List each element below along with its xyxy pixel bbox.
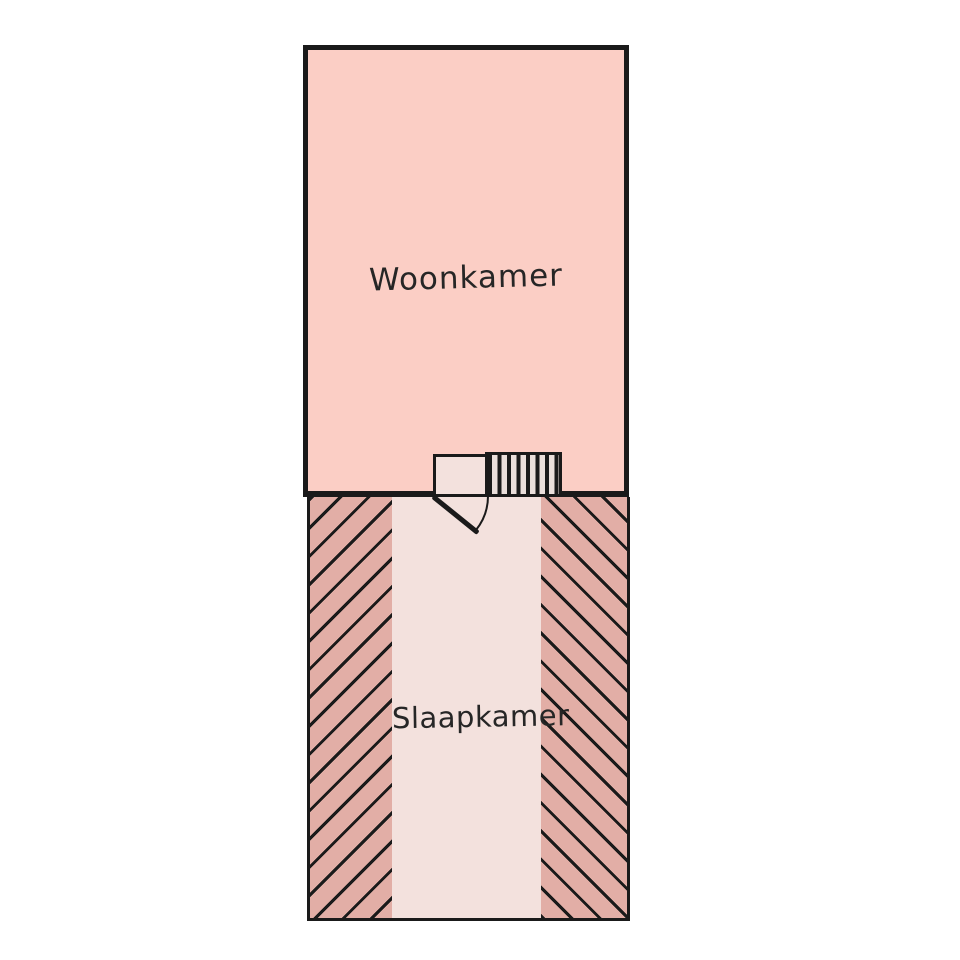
- floorplan-canvas: Woonkamer Slaapkamer: [0, 0, 960, 960]
- slaapkamer-room: Slaapkamer: [307, 497, 630, 921]
- slaapkamer-floor: Slaapkamer: [392, 497, 541, 918]
- door-swing-arc: [420, 488, 500, 540]
- left-wall-hatch: [310, 497, 392, 918]
- woonkamer-label: Woonkamer: [308, 256, 625, 300]
- slaapkamer-label: Slaapkamer: [392, 699, 542, 736]
- woonkamer-room: Woonkamer: [303, 45, 629, 497]
